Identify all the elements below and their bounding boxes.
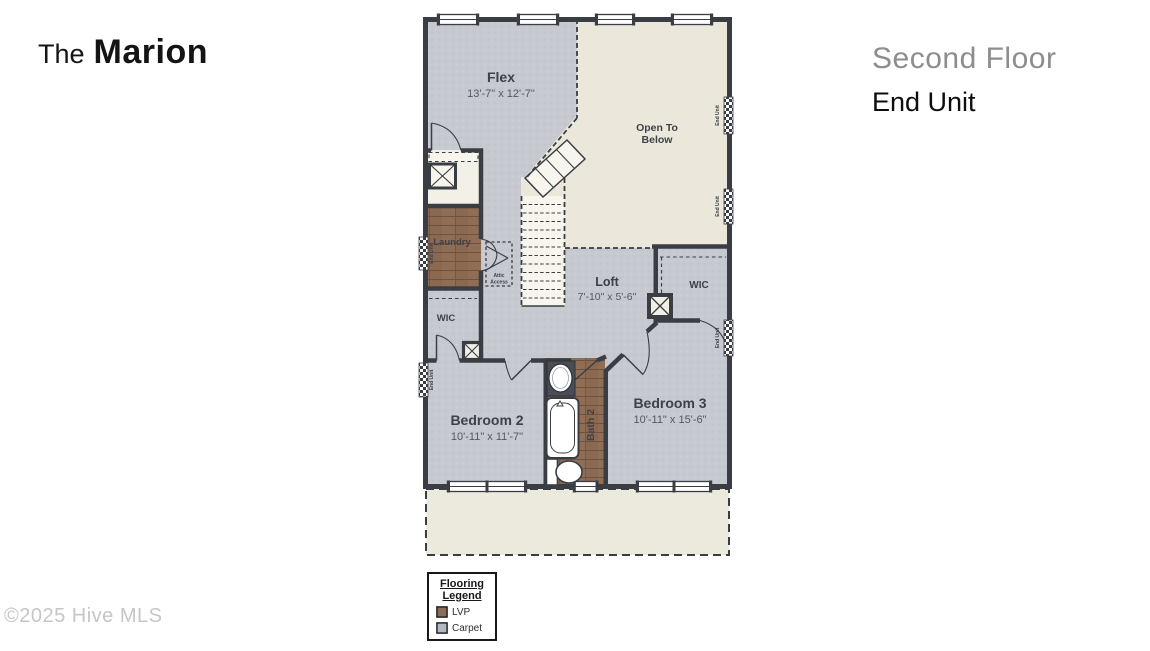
loft-floor: [565, 248, 654, 360]
vanity-sink: [547, 361, 575, 396]
lvp-swatch: [436, 606, 448, 618]
loft-dims: 7'-10" x 5'-6": [578, 291, 637, 303]
laundry-label: Laundry: [433, 237, 471, 248]
wic-left-corner-box: [464, 343, 481, 360]
toilet: [547, 459, 583, 485]
svg-text:Access: Access: [490, 280, 508, 286]
floor-plan-svg: Attic Access: [0, 0, 1150, 651]
hall-floor: [481, 150, 521, 360]
legend-item-carpet: Carpet: [436, 622, 493, 634]
svg-text:Below: Below: [642, 134, 674, 146]
loft-label: Loft: [595, 275, 619, 289]
chase-box: [649, 295, 671, 317]
bath2-label: Bath 2: [585, 409, 597, 441]
roof-below-outline: [426, 489, 729, 555]
bedroom3-label: Bedroom 3: [633, 395, 706, 411]
legend-item-lvp: LVP: [436, 606, 493, 618]
svg-text:End Unit: End Unit: [715, 105, 721, 126]
flooring-legend: Flooring Legend LVP Carpet: [427, 572, 497, 641]
flex-dims: 13'-7" x 12'-7": [467, 88, 535, 100]
closet-shelf-box: [430, 164, 456, 188]
svg-text:End Unit: End Unit: [429, 369, 435, 390]
legend-title: Flooring: [431, 578, 493, 590]
bedroom2-label: Bedroom 2: [450, 412, 523, 428]
bedroom3-dims: 10'-11" x 15'-6": [634, 414, 707, 426]
wic-right-label: WIC: [689, 280, 708, 291]
bathtub: [547, 398, 579, 458]
windows-bottom: [447, 481, 712, 493]
svg-text:End Unit: End Unit: [715, 327, 721, 348]
open-to-below-label: Open To: [636, 122, 678, 134]
floorplan-flyer: The Marion Second Floor End Unit ©2025 H…: [0, 0, 1150, 651]
attic-access-label: Attic: [493, 273, 504, 279]
wic-left-label: WIC: [437, 313, 456, 324]
svg-text:End Unit: End Unit: [715, 196, 721, 217]
flex-label: Flex: [487, 69, 515, 85]
carpet-swatch: [436, 622, 448, 634]
bedroom2-dims: 10'-11" x 11'-7": [451, 431, 523, 443]
